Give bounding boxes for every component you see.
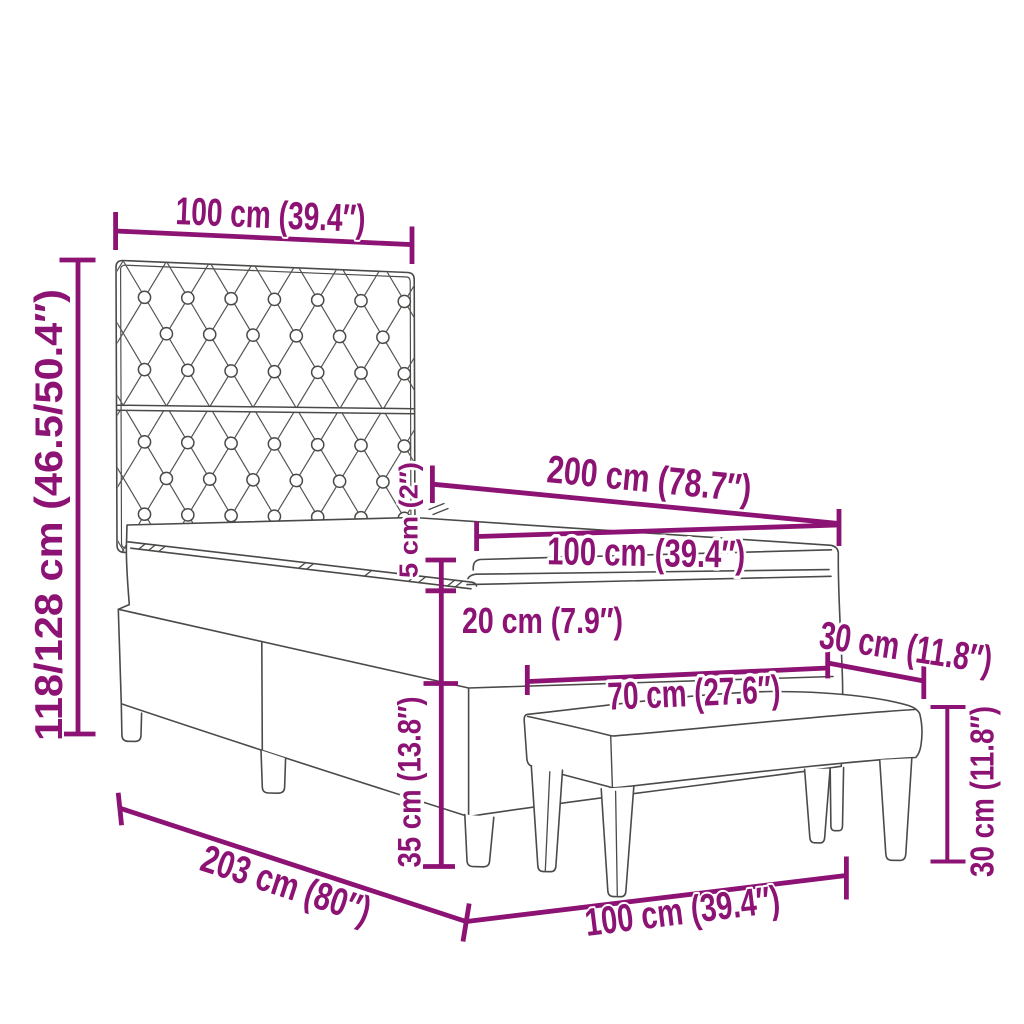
svg-text:5 cm (2″): 5 cm (2″) xyxy=(394,462,424,578)
svg-text:35 cm (13.8″): 35 cm (13.8″) xyxy=(392,697,428,868)
svg-text:30 cm (11.8″): 30 cm (11.8″) xyxy=(964,706,1001,877)
svg-text:70 cm (27.6″): 70 cm (27.6″) xyxy=(607,668,782,719)
svg-text:20 cm (7.9″): 20 cm (7.9″) xyxy=(462,600,623,641)
svg-text:100 cm (39.4″): 100 cm (39.4″) xyxy=(175,190,367,241)
svg-text:100 cm (39.4″): 100 cm (39.4″) xyxy=(547,530,746,576)
svg-text:118/128 cm (46.5/50.4″): 118/128 cm (46.5/50.4″) xyxy=(28,289,71,741)
